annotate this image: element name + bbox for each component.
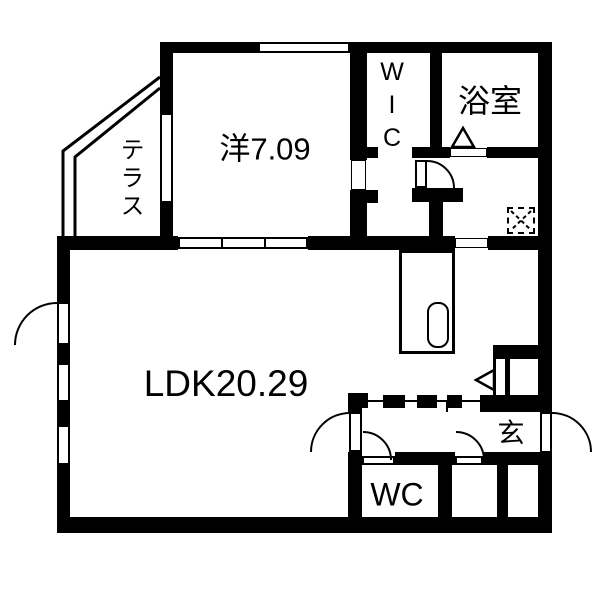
- door-leaf-washroom: [455, 456, 483, 465]
- label-toilet: WC: [370, 477, 423, 514]
- wall-left-c: [57, 402, 70, 425]
- wall-left-d: [57, 465, 70, 517]
- opening-western-door: [351, 160, 366, 190]
- wall-stub-corridor-left: [350, 190, 378, 203]
- window-western-bottom: [178, 237, 308, 249]
- window-western-left: [160, 113, 173, 203]
- window-western-top: [258, 42, 350, 53]
- window-pane-divider: [264, 238, 266, 248]
- washing-machine-pad: [507, 207, 535, 234]
- wall-western-left-a: [160, 53, 173, 113]
- door-leaf-entrance: [540, 412, 552, 453]
- label-terrace: テラス: [112, 137, 147, 221]
- kitchen-triangle: [476, 370, 494, 390]
- wall-mid-c: [488, 236, 552, 250]
- door-leaf-corridor: [415, 160, 427, 188]
- wall-corridor-bar: [429, 202, 443, 236]
- shoe-cabinet-large: [510, 359, 538, 395]
- wall-under-bathroom: [487, 147, 538, 158]
- door-arc-entrance: [552, 413, 591, 452]
- wall-mid-b: [308, 236, 455, 250]
- wall-store-left: [497, 465, 508, 517]
- kitchen-sink: [427, 302, 449, 348]
- wall-top: [160, 42, 552, 53]
- door-leaf-hall-ldk: [349, 412, 362, 452]
- shoe-cabinet-small: [496, 359, 505, 395]
- wall-hall-bottom-a: [348, 452, 362, 517]
- wall-under-wic-a: [350, 147, 378, 158]
- door-leaf-ldk-left: [57, 302, 70, 345]
- floor-plan: 洋7.09 LDK20.29 浴室 WC 玄 テラス WIC: [0, 0, 600, 600]
- label-ldk: LDK20.29: [144, 363, 309, 405]
- opening-bathroom-door: [450, 148, 487, 157]
- wall-under-wic-b: [412, 147, 450, 158]
- wall-western-right-a: [350, 53, 367, 160]
- wall-hall-bottom-b: [395, 452, 455, 465]
- wall-bottom: [57, 517, 552, 533]
- halfwall-square-2: [417, 395, 437, 408]
- label-entrance: 玄: [498, 412, 525, 451]
- door-arc-corridor: [427, 161, 454, 188]
- halfwall-square-1: [383, 395, 405, 408]
- wall-western-left-b: [160, 203, 173, 237]
- opening-washroom-kitchen: [455, 238, 488, 248]
- label-western-room: 洋7.09: [219, 124, 310, 169]
- label-wic: WIC: [377, 58, 406, 157]
- door-arc-ldk-left: [15, 303, 57, 345]
- wall-wic-bathroom: [430, 53, 442, 147]
- window-ldk-left-1: [57, 363, 70, 402]
- label-bathroom: 浴室: [458, 76, 522, 122]
- wall-mid-a: [57, 236, 178, 250]
- window-ldk-left-2: [57, 425, 70, 465]
- wall-hall-left-top: [348, 402, 362, 412]
- wall-hall-bottom-c: [483, 452, 552, 465]
- bathroom-door-triangle: [452, 128, 474, 147]
- window-pane-divider: [221, 238, 223, 248]
- door-leaf-wc: [362, 456, 395, 465]
- wall-stub-corridor-mid: [412, 188, 463, 202]
- wall-left-b: [57, 345, 70, 363]
- wall-wc-right: [438, 465, 452, 517]
- door-arc-hall-ldk: [311, 413, 350, 452]
- halfwall-square-3: [447, 395, 462, 408]
- halfwall-block-right: [480, 395, 550, 412]
